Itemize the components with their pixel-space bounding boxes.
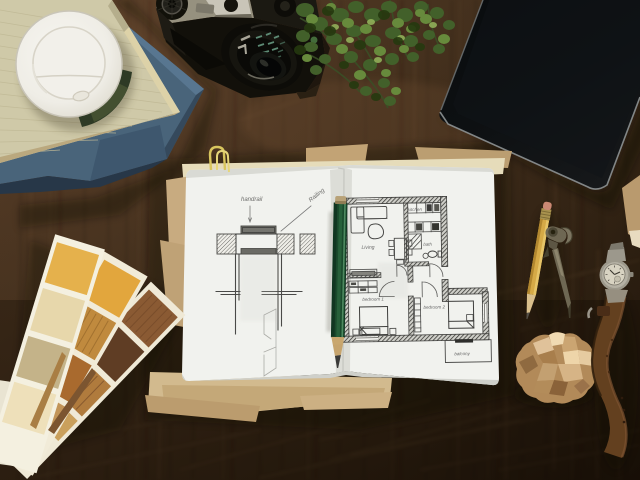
svg-text:kitchen: kitchen bbox=[408, 207, 423, 212]
svg-text:bath: bath bbox=[423, 242, 432, 247]
svg-text:bedroom 2: bedroom 2 bbox=[423, 304, 445, 309]
svg-text:Living: Living bbox=[361, 245, 374, 251]
svg-text:handrail: handrail bbox=[241, 197, 263, 203]
svg-text:balcony: balcony bbox=[454, 351, 470, 356]
